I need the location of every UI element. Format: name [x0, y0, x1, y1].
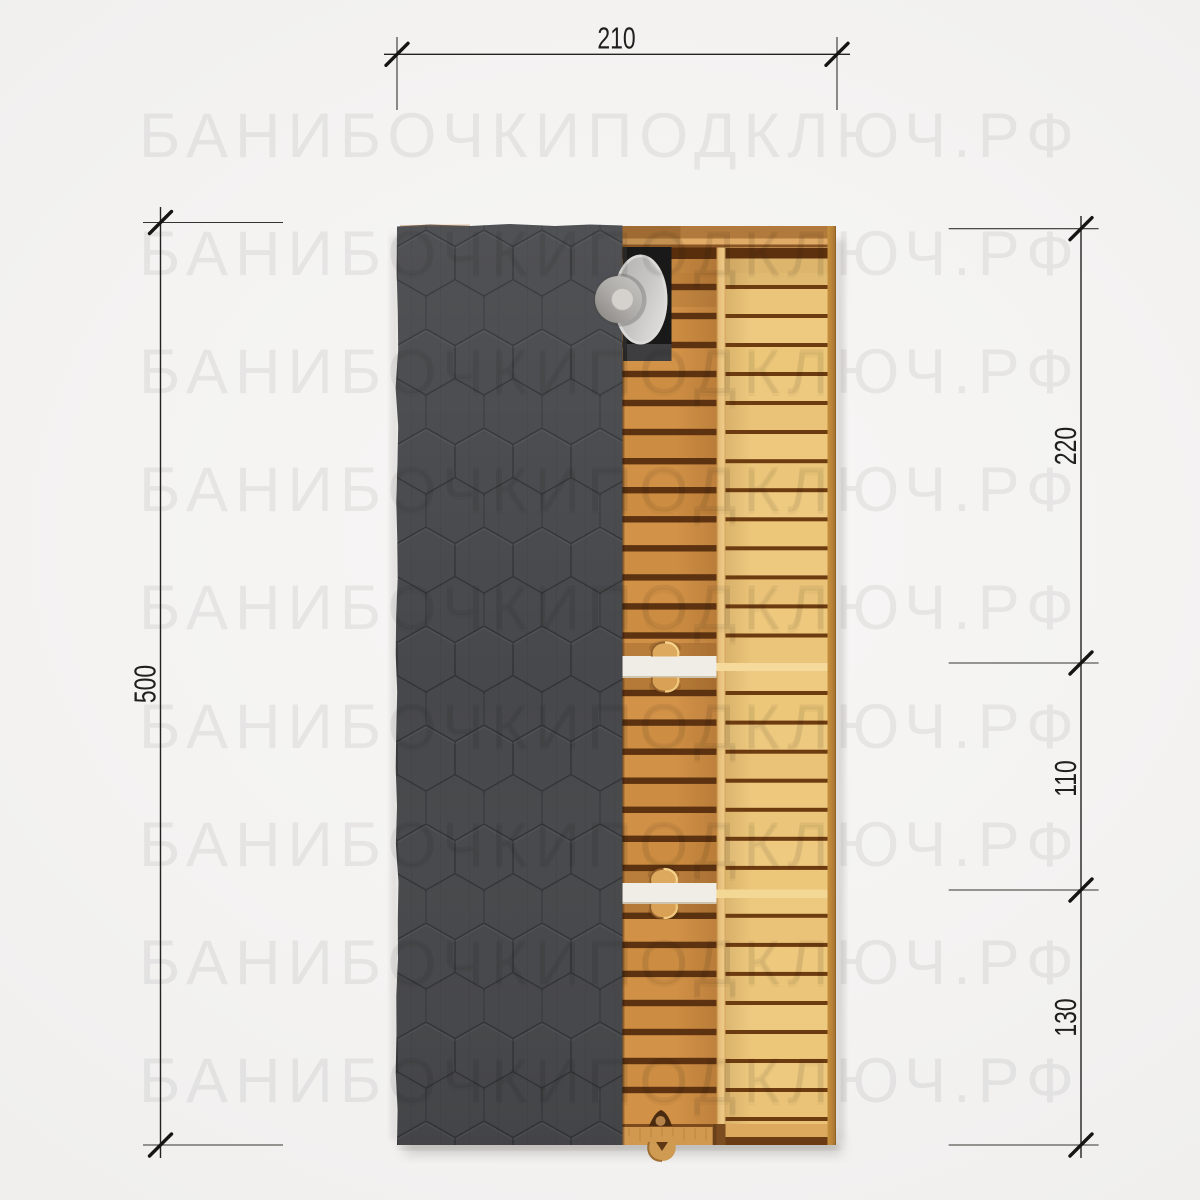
svg-text:110: 110 — [1048, 760, 1083, 797]
svg-text:130: 130 — [1048, 998, 1083, 1036]
svg-text:210: 210 — [597, 20, 635, 55]
svg-text:500: 500 — [127, 665, 162, 703]
svg-text:220: 220 — [1048, 427, 1083, 465]
